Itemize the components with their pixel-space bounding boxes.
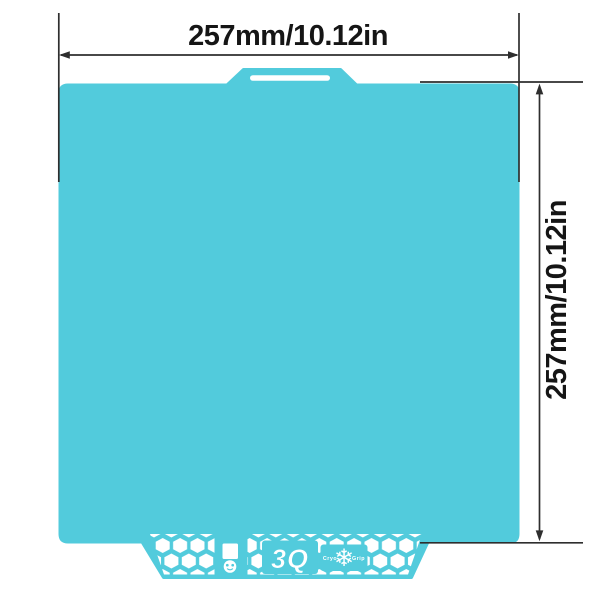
arrowhead-right xyxy=(508,51,519,59)
height-dimension-label: 257mm/10.12in xyxy=(541,200,573,400)
handle-slot-cutout xyxy=(250,75,330,81)
square-cutout xyxy=(223,544,239,560)
grip-brand-right: Grip xyxy=(352,556,365,562)
arrowhead-top xyxy=(536,84,544,95)
smiley-face-icon xyxy=(224,560,237,573)
diagram-canvas: 3Q ❄ Cryo Grip 257mm/10.12in 257mm/10.12… xyxy=(0,0,600,600)
grip-brand-left: Cryo xyxy=(323,556,337,562)
brand-logo: 3Q xyxy=(271,544,309,574)
build-plate xyxy=(60,70,518,578)
width-dimension-label: 257mm/10.12in xyxy=(188,20,388,52)
build-plate-diagram: 3Q ❄ Cryo Grip 257mm/10.12in 257mm/10.12… xyxy=(0,0,600,600)
arrowhead-left xyxy=(59,51,70,59)
arrowhead-bottom xyxy=(536,530,544,541)
